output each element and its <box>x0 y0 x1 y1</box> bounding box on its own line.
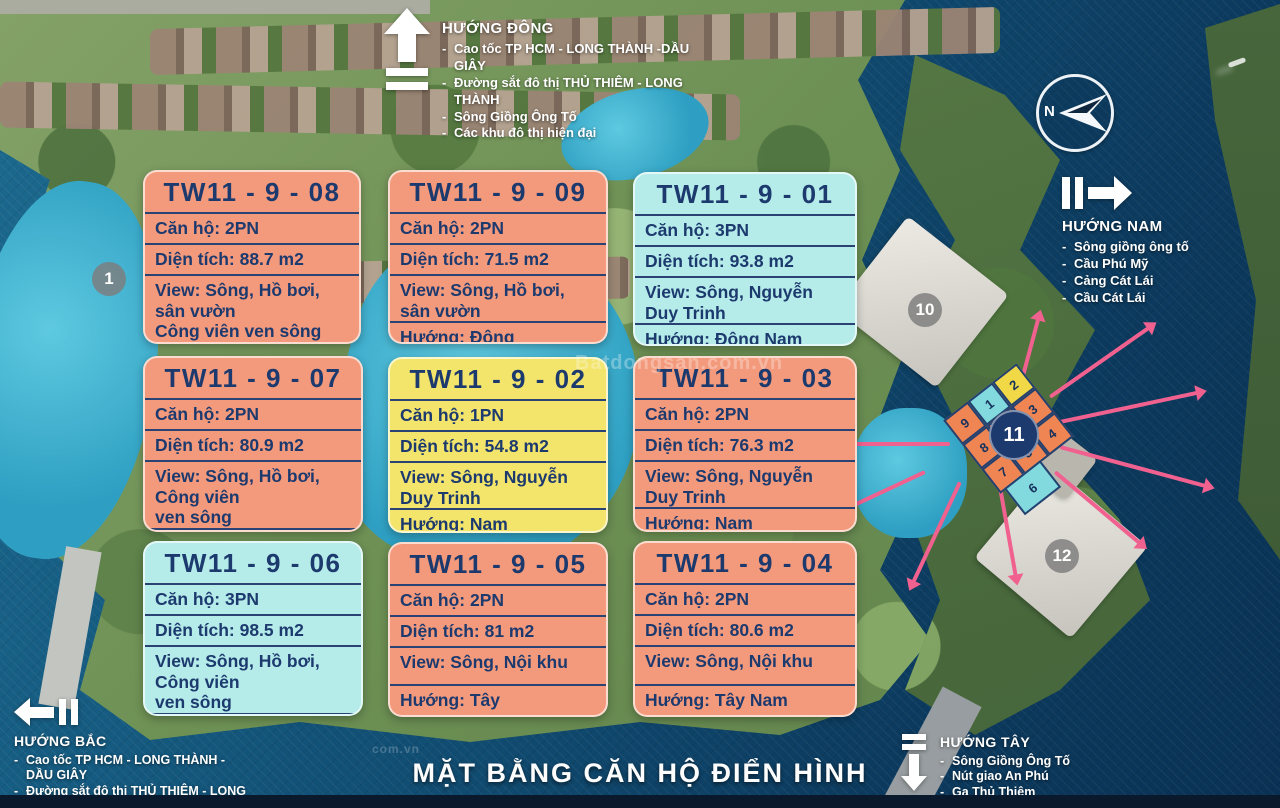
unit-view: View: Sông, Nguyễn Duy Trinh <box>390 461 606 508</box>
unit-card-tw11-9-02: TW11 - 9 - 02 Căn hộ: 1PN Diện tích: 54.… <box>388 357 608 533</box>
legend-south-items: Sông giồng ông tố Cầu Phú Mỹ Cảng Cát Lá… <box>1062 239 1247 307</box>
unit-card-tw11-9-05: TW11 - 9 - 05 Căn hộ: 2PN Diện tích: 81 … <box>388 542 608 717</box>
zone-marker-10: 10 <box>908 293 942 327</box>
legend-south-title: HƯỚNG NAM <box>1062 218 1247 235</box>
arrow-left-icon <box>14 698 249 726</box>
unit-view: View: Sông, Nguyễn Duy Trinh <box>635 276 855 323</box>
top-road <box>0 0 430 14</box>
unit-direction: Hướng: Đông <box>390 321 606 344</box>
compass-needle-icon <box>1057 87 1109 139</box>
unit-area: Diện tích: 76.3 m2 <box>635 429 855 460</box>
zone-marker-1: 1 <box>92 262 126 296</box>
unit-view: View: Sông, Nguyễn Duy Trinh <box>635 460 855 507</box>
unit-bedrooms: Căn hộ: 2PN <box>635 583 855 614</box>
unit-bedrooms: Căn hộ: 2PN <box>390 212 606 243</box>
unit-direction: Hướng: Bắc <box>145 528 361 532</box>
unit-area: Diện tích: 80.6 m2 <box>635 614 855 645</box>
unit-bedrooms: Căn hộ: 1PN <box>390 399 606 430</box>
unit-view: View: Sông, Hồ bơi, Công viên ven sông <box>145 460 361 528</box>
legend-item: Sông Giồng Ông Tố <box>442 109 724 126</box>
legend-west-title: HƯỚNG TÂY <box>940 734 1070 750</box>
unit-card-tw11-9-04: TW11 - 9 - 04 Căn hộ: 2PN Diện tích: 80.… <box>633 541 857 717</box>
unit-area: Diện tích: 54.8 m2 <box>390 430 606 461</box>
unit-bedrooms: Căn hộ: 2PN <box>390 584 606 615</box>
unit-view: View: Sông, Nội khu <box>635 645 855 684</box>
watermark: Batdongsan.com.vn <box>575 352 783 375</box>
unit-code: TW11 - 9 - 07 <box>145 358 361 398</box>
unit-card-tw11-9-07: TW11 - 9 - 07 Căn hộ: 2PN Diện tích: 80.… <box>143 356 363 532</box>
unit-bedrooms: Căn hộ: 3PN <box>635 214 855 245</box>
legend-item: Cầu Cát Lái <box>1062 290 1247 307</box>
unit-card-tw11-9-01: TW11 - 9 - 01 Căn hộ: 3PN Diện tích: 93.… <box>633 172 857 346</box>
unit-bedrooms: Căn hộ: 3PN <box>145 583 361 614</box>
unit-bedrooms: Căn hộ: 2PN <box>145 398 361 429</box>
unit-area: Diện tích: 98.5 m2 <box>145 614 361 645</box>
legend-north: HƯỚNG BẮC Cao tốc TP HCM - LONG THÀNH - … <box>14 698 249 808</box>
unit-code: TW11 - 9 - 04 <box>635 543 855 583</box>
legend-item: Các khu đô thị hiện đại <box>442 125 724 142</box>
legend-item: Đường sắt đô thị THỦ THIÊM - LONG THÀNH <box>442 75 724 109</box>
unit-card-tw11-9-08: TW11 - 9 - 08 Căn hộ: 2PN Diện tích: 88.… <box>143 170 361 344</box>
unit-direction: Hướng: Đông Nam <box>635 323 855 346</box>
legend-item: Cầu Phú Mỹ <box>1062 256 1247 273</box>
legend-east-title: HƯỚNG ĐÔNG <box>442 20 724 37</box>
legend-east: HƯỚNG ĐÔNG Cao tốc TP HCM - LONG THÀNH -… <box>384 8 724 142</box>
unit-code: TW11 - 9 - 02 <box>390 359 606 399</box>
unit-bedrooms: Căn hộ: 2PN <box>145 212 359 243</box>
legend-item: Cao tốc TP HCM - LONG THÀNH -DẦU GIÂY <box>442 41 724 75</box>
zone-marker-12: 12 <box>1045 539 1079 573</box>
bottom-bar <box>0 795 1280 808</box>
unit-card-tw11-9-09: TW11 - 9 - 09 Căn hộ: 2PN Diện tích: 71.… <box>388 170 608 344</box>
legend-item: Sông giồng ông tố <box>1062 239 1247 256</box>
arrow-up-icon <box>384 8 430 90</box>
tower-11-unit-diagram: 9 1 2 8 3 7 5 4 6 11 <box>950 376 1074 492</box>
unit-code: TW11 - 9 - 08 <box>145 172 359 212</box>
unit-area: Diện tích: 71.5 m2 <box>390 243 606 274</box>
unit-area: Diện tích: 81 m2 <box>390 615 606 646</box>
unit-area: Diện tích: 88.7 m2 <box>145 243 359 274</box>
unit-code: TW11 - 9 - 06 <box>145 543 361 583</box>
unit-direction: Hướng: Nam <box>390 508 606 533</box>
unit-code: TW11 - 9 - 05 <box>390 544 606 584</box>
compass-north-label: N <box>1044 103 1055 120</box>
tower-11-badge: 11 <box>989 410 1039 460</box>
unit-view: View: Sông, Hồ bơi, sân vườn <box>390 274 606 321</box>
unit-card-tw11-9-03: TW11 - 9 - 03 Căn hộ: 2PN Diện tích: 76.… <box>633 356 857 532</box>
unit-direction: Hướng: Nam <box>635 507 855 532</box>
page-title: MẶT BẰNG CĂN HỘ ĐIỂN HÌNH <box>0 758 1280 789</box>
direction-arrow <box>855 442 950 446</box>
unit-direction: Hướng: Đông Bắc <box>145 342 359 344</box>
unit-area: Diện tích: 80.9 m2 <box>145 429 361 460</box>
legend-north-title: HƯỚNG BẮC <box>14 733 249 749</box>
site-plan-canvas: 1 10 12 9 1 2 8 3 7 5 4 6 11 TW11 - 9 - … <box>0 0 1280 808</box>
watermark: com.vn <box>372 742 420 756</box>
unit-view: View: Sông, Hồ bơi, sân vườn Công viên v… <box>145 274 359 342</box>
unit-card-tw11-9-06: TW11 - 9 - 06 Căn hộ: 3PN Diện tích: 98.… <box>143 541 363 716</box>
unit-code: TW11 - 9 - 01 <box>635 174 855 214</box>
unit-code: TW11 - 9 - 09 <box>390 172 606 212</box>
unit-direction: Hướng: Tây Nam <box>635 684 855 715</box>
compass-icon: N <box>1036 74 1114 152</box>
legend-south: HƯỚNG NAM Sông giồng ông tố Cầu Phú Mỹ C… <box>1062 176 1247 307</box>
unit-direction: Hướng: Tây <box>390 684 606 715</box>
legend-east-items: Cao tốc TP HCM - LONG THÀNH -DẦU GIÂY Đư… <box>442 41 724 142</box>
legend-item: Cảng Cát Lái <box>1062 273 1247 290</box>
arrow-right-icon <box>1062 176 1247 210</box>
unit-view: View: Sông, Nội khu <box>390 646 606 684</box>
unit-bedrooms: Căn hộ: 2PN <box>635 398 855 429</box>
unit-area: Diện tích: 93.8 m2 <box>635 245 855 276</box>
